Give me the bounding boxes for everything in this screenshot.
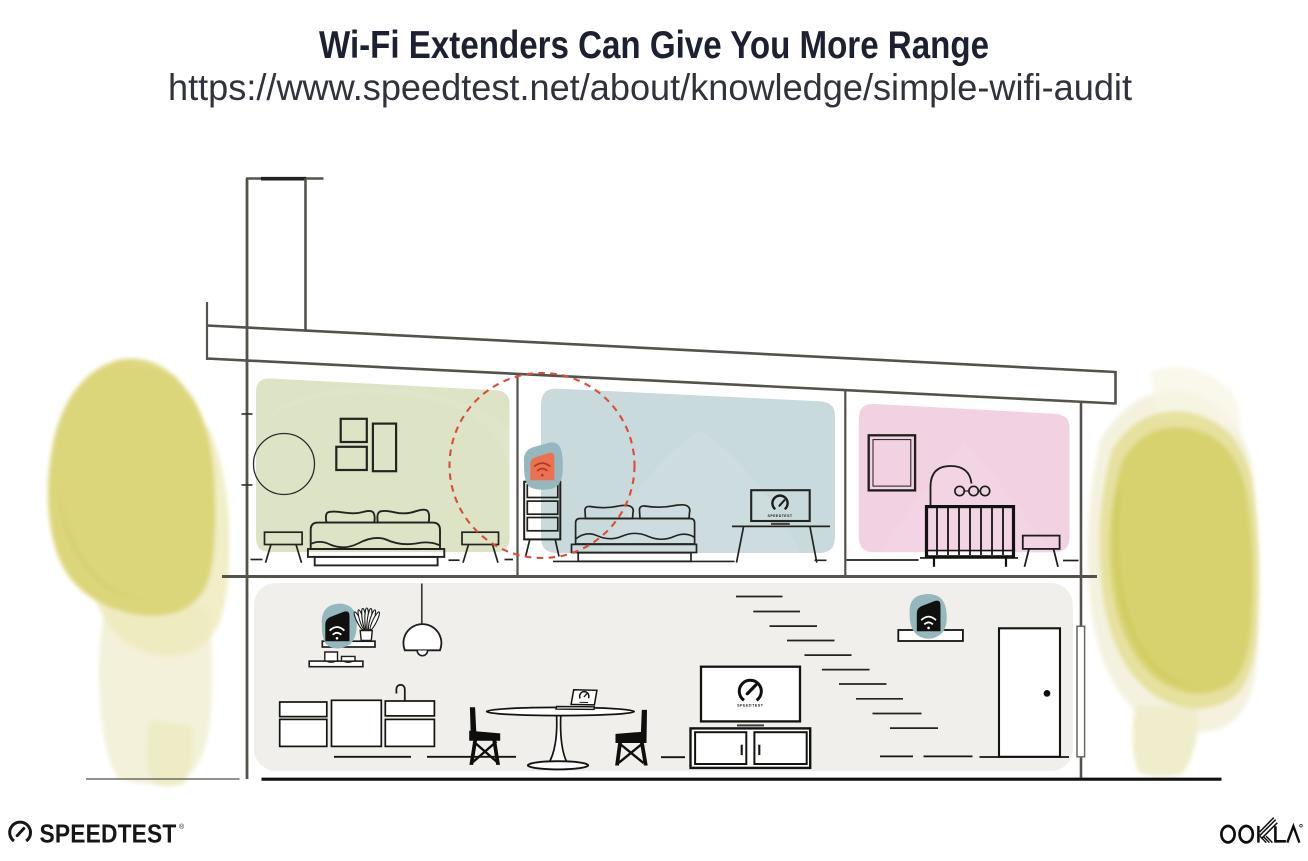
svg-text:Wi-Fi Extenders Can Give You M: Wi-Fi Extenders Can Give You More Range xyxy=(319,24,989,67)
svg-text:SPEEDTEST: SPEEDTEST xyxy=(737,704,764,708)
svg-text:SPEEDTEST: SPEEDTEST xyxy=(768,514,793,518)
svg-text:https://www.speedtest.net/abou: https://www.speedtest.net/about/knowledg… xyxy=(168,67,1133,108)
svg-text:®: ® xyxy=(179,823,185,831)
svg-text:SPEEDTEST: SPEEDTEST xyxy=(40,821,177,849)
